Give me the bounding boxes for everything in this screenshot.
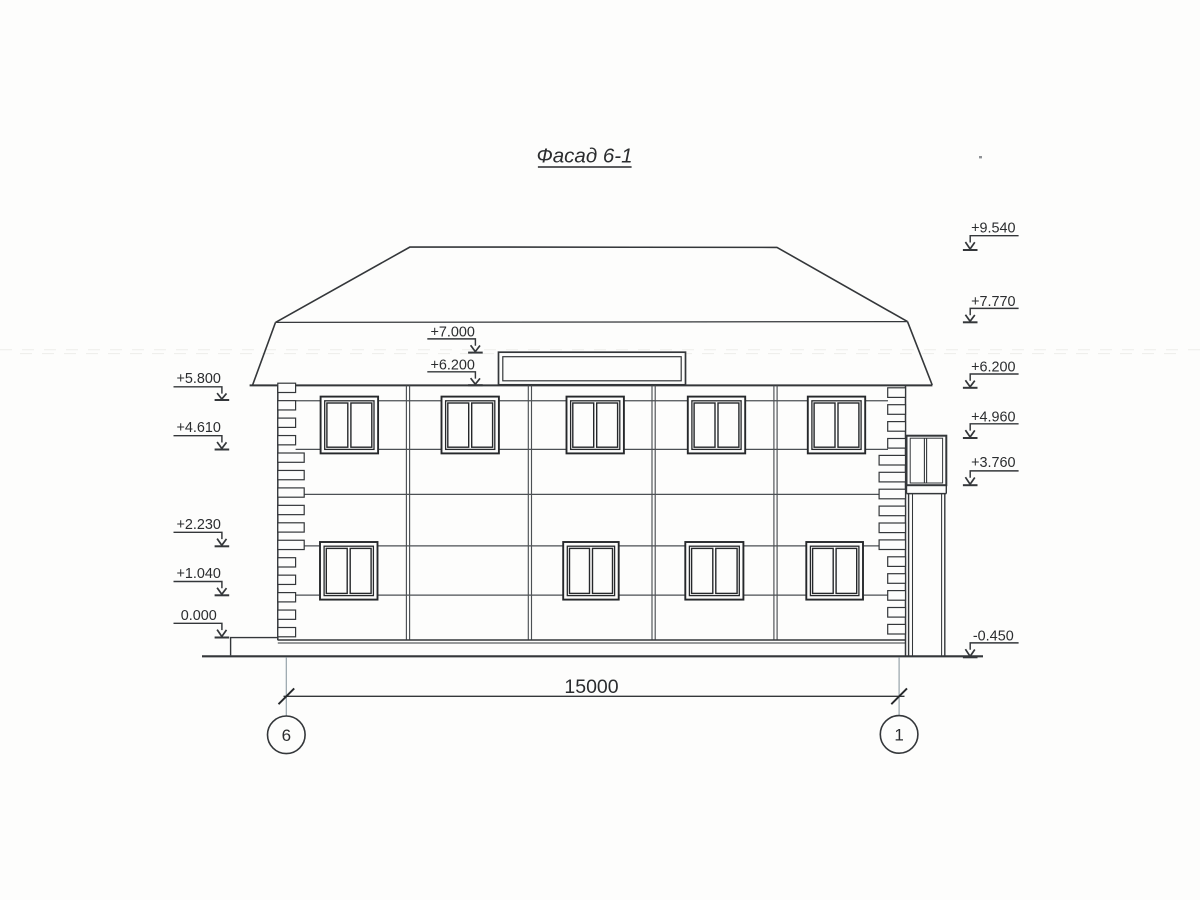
svg-text:15000: 15000 — [564, 676, 618, 698]
svg-text:+7.000: +7.000 — [430, 325, 474, 341]
svg-text:+7.770: +7.770 — [971, 294, 1015, 310]
svg-text:+6.200: +6.200 — [430, 357, 474, 373]
svg-text:-0.450: -0.450 — [973, 628, 1014, 644]
svg-text:Фасад 6-1: Фасад 6-1 — [536, 145, 632, 168]
svg-text:6: 6 — [282, 726, 291, 745]
svg-text:+1.040: +1.040 — [176, 566, 220, 582]
svg-text:+5.800: +5.800 — [176, 371, 220, 387]
svg-text:+2.230: +2.230 — [176, 517, 220, 533]
svg-text:+6.200: +6.200 — [971, 360, 1015, 376]
svg-text:+3.760: +3.760 — [971, 455, 1015, 471]
svg-text:+4.610: +4.610 — [176, 420, 220, 436]
svg-text:+4.960: +4.960 — [971, 409, 1015, 425]
svg-text:+9.540: +9.540 — [971, 221, 1015, 237]
svg-text:1: 1 — [894, 726, 903, 745]
svg-text:0.000: 0.000 — [181, 608, 217, 624]
